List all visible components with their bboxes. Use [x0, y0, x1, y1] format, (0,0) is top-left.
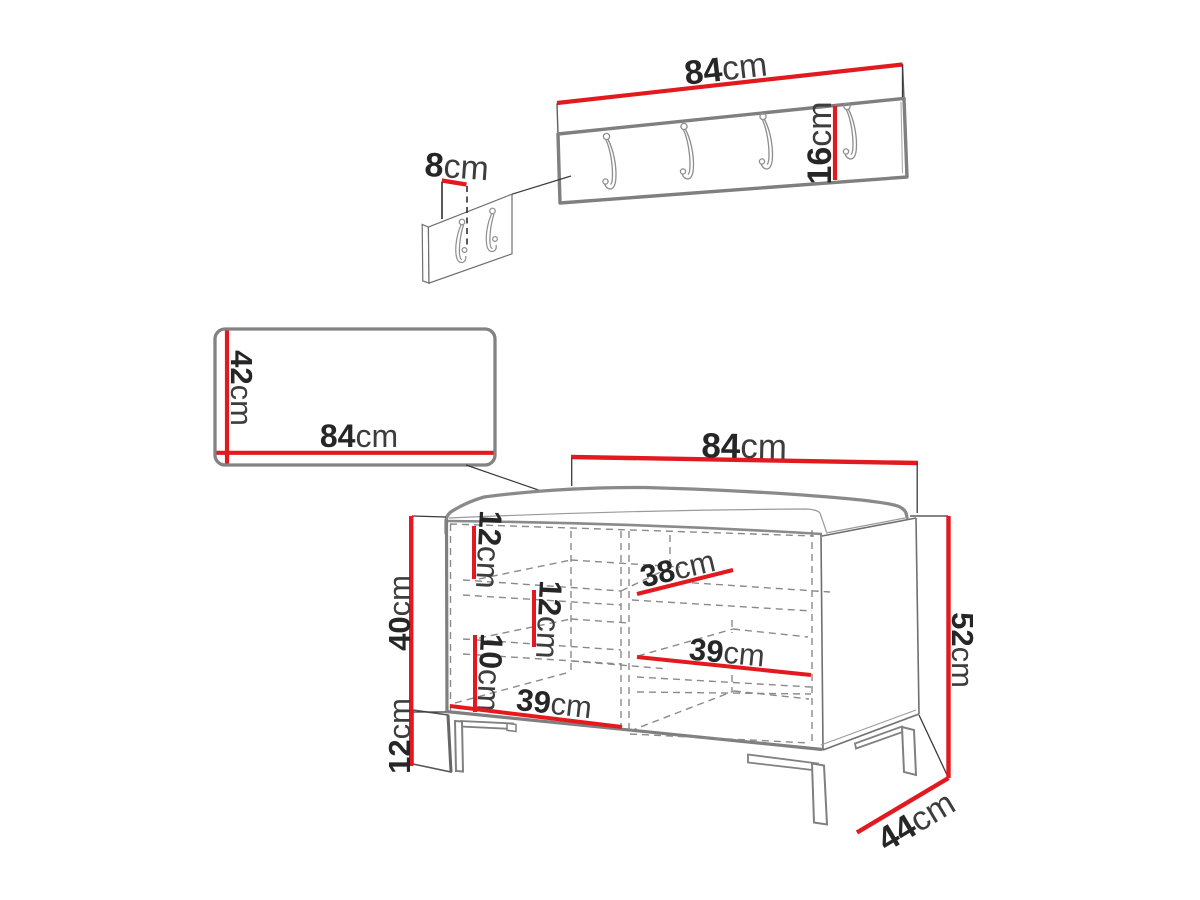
- svg-text:84cm: 84cm: [320, 418, 398, 454]
- svg-text:12cm: 12cm: [529, 580, 569, 660]
- svg-text:42cm: 42cm: [224, 350, 259, 426]
- svg-text:10cm: 10cm: [470, 633, 510, 713]
- svg-text:12cm: 12cm: [469, 510, 509, 590]
- svg-text:8cm: 8cm: [423, 146, 490, 188]
- svg-text:84cm: 84cm: [701, 426, 787, 466]
- svg-text:39cm: 39cm: [688, 631, 767, 673]
- svg-text:16cm: 16cm: [801, 101, 839, 184]
- svg-text:12cm: 12cm: [382, 698, 417, 774]
- svg-text:52cm: 52cm: [945, 612, 980, 688]
- svg-text:40cm: 40cm: [382, 575, 417, 651]
